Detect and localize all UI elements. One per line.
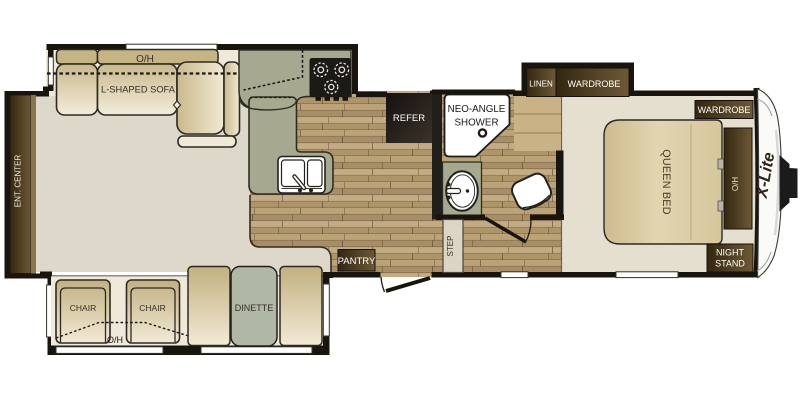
svg-text:NEO-ANGLE: NEO-ANGLE [448,104,506,115]
svg-text:ENT. CENTER: ENT. CENTER [14,155,23,208]
svg-text:CHAIR: CHAIR [139,303,165,313]
svg-text:CHAIR: CHAIR [70,303,96,313]
svg-text:PANTRY: PANTRY [338,256,376,267]
svg-text:NIGHT: NIGHT [716,248,745,258]
svg-text:STEP: STEP [446,236,455,257]
svg-text:L-SHAPED SOFA: L-SHAPED SOFA [101,85,176,95]
svg-text:O/H: O/H [731,177,740,191]
svg-text:QUEEN BED: QUEEN BED [660,149,672,214]
svg-text:STAND: STAND [715,259,745,269]
svg-text:WARDROBE: WARDROBE [568,79,621,89]
svg-text:SHOWER: SHOWER [454,118,498,129]
svg-text:DINETTE: DINETTE [235,303,274,313]
svg-text:LINEN: LINEN [529,80,553,89]
svg-text:WARDROBE: WARDROBE [698,105,751,115]
svg-text:O/H: O/H [136,54,154,65]
svg-text:O/H: O/H [107,335,123,345]
svg-text:REFER: REFER [393,113,425,124]
